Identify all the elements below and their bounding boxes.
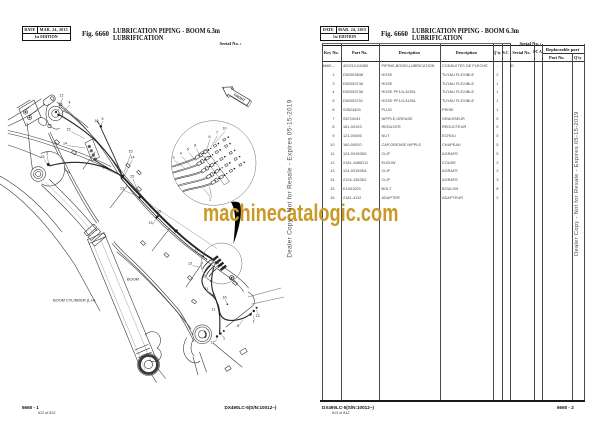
- svg-text:15: 15: [129, 150, 133, 154]
- svg-text:15: 15: [195, 249, 199, 253]
- svg-text:14: 14: [131, 156, 135, 160]
- svg-text:3: 3: [173, 156, 175, 160]
- svg-text:13: 13: [188, 262, 192, 266]
- svg-text:13: 13: [103, 166, 107, 170]
- svg-text:15: 15: [157, 210, 161, 214]
- svg-text:11: 11: [205, 287, 209, 291]
- svg-text:4: 4: [180, 152, 182, 156]
- svg-text:15: 15: [203, 275, 207, 279]
- svg-text:7: 7: [216, 131, 218, 135]
- svg-text:14: 14: [63, 142, 67, 146]
- svg-text:10: 10: [223, 126, 227, 130]
- svg-text:4: 4: [69, 101, 71, 105]
- svg-text:13: 13: [120, 187, 124, 191]
- svg-text:6: 6: [237, 324, 239, 328]
- svg-text:6: 6: [209, 135, 211, 139]
- svg-text:BOOM: BOOM: [127, 277, 139, 282]
- svg-text:8: 8: [194, 144, 196, 148]
- svg-text:16: 16: [95, 119, 99, 123]
- svg-text:13: 13: [149, 221, 153, 225]
- svg-text:11: 11: [212, 308, 216, 312]
- svg-text:16: 16: [223, 295, 227, 299]
- svg-text:BOOM CYLINDER (L.H): BOOM CYLINDER (L.H): [53, 298, 96, 303]
- svg-text:12: 12: [211, 341, 215, 345]
- svg-text:12: 12: [256, 314, 260, 318]
- svg-text:12: 12: [60, 94, 64, 98]
- svg-text:5: 5: [187, 148, 189, 152]
- svg-text:3: 3: [46, 152, 48, 156]
- svg-text:5: 5: [102, 117, 104, 121]
- svg-text:16: 16: [41, 155, 45, 159]
- svg-text:15: 15: [67, 128, 71, 132]
- svg-text:15: 15: [130, 175, 134, 179]
